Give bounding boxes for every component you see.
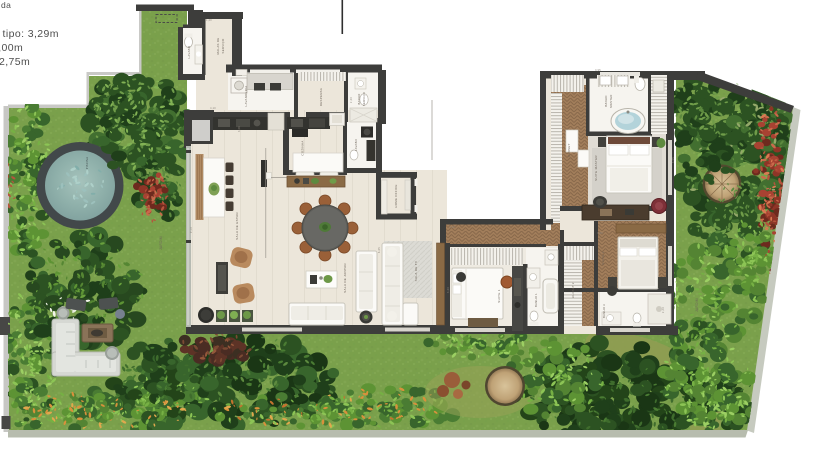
svg-text:3,50: 3,50: [597, 232, 603, 235]
svg-text:2,75m: 2,75m: [0, 56, 30, 68]
svg-text:CLOSET: CLOSET: [567, 143, 571, 156]
svg-text:3,00m: 3,00m: [0, 42, 23, 54]
svg-text:BANHO: BANHO: [604, 95, 608, 107]
svg-text:LAVABO: LAVABO: [354, 139, 358, 151]
svg-text:DESPENSA: DESPENSA: [319, 88, 323, 106]
svg-text:SERVIÇO: SERVIÇO: [221, 38, 225, 54]
svg-text:9,10: 9,10: [190, 227, 193, 233]
svg-text:3,08: 3,08: [238, 126, 241, 132]
svg-text:COZINHA: COZINHA: [301, 140, 305, 155]
svg-text:da: da: [1, 0, 11, 10]
svg-text:SALA DE ESTAR: SALA DE ESTAR: [235, 212, 239, 240]
svg-text:3,30: 3,30: [447, 287, 450, 293]
svg-text:3,95: 3,95: [595, 69, 601, 72]
svg-text:4,10: 4,10: [449, 226, 455, 229]
svg-text:o tipo: 3,29m: o tipo: 3,29m: [0, 28, 59, 40]
svg-text:MASTER: MASTER: [609, 94, 613, 107]
svg-text:PISCINA: PISCINA: [85, 157, 89, 169]
svg-text:BANHO: BANHO: [357, 93, 361, 104]
svg-text:LAVANDERIA: LAVANDERIA: [244, 86, 248, 107]
svg-text:2,30: 2,30: [350, 97, 353, 103]
svg-text:LAVABO: LAVABO: [187, 45, 191, 58]
svg-text:4,10: 4,10: [210, 107, 216, 110]
svg-text:SALA DE TV: SALA DE TV: [414, 260, 418, 281]
svg-text:2,40: 2,40: [662, 307, 665, 313]
svg-text:SUITE 2: SUITE 2: [601, 251, 605, 264]
svg-text:BANHO 1: BANHO 1: [534, 293, 538, 307]
svg-text:HOME OFFICE: HOME OFFICE: [394, 184, 398, 207]
svg-text:SUITE 1: SUITE 1: [497, 289, 501, 302]
svg-text:BANHO 3: BANHO 3: [602, 304, 606, 318]
svg-text:MALAS DE: MALAS DE: [216, 37, 220, 54]
svg-text:SALA DE JANTAR: SALA DE JANTAR: [343, 263, 347, 293]
svg-text:3,55: 3,55: [672, 157, 675, 163]
svg-text:JARDIM: JARDIM: [695, 298, 699, 312]
svg-text:SUITE MASTER: SUITE MASTER: [594, 155, 598, 181]
svg-text:SERVIÇO: SERVIÇO: [362, 92, 366, 106]
svg-text:CLOSET 2: CLOSET 2: [571, 282, 575, 298]
svg-text:6,05: 6,05: [378, 247, 381, 253]
svg-text:1,20: 1,20: [206, 19, 212, 22]
svg-text:JARDIM: JARDIM: [159, 236, 163, 250]
